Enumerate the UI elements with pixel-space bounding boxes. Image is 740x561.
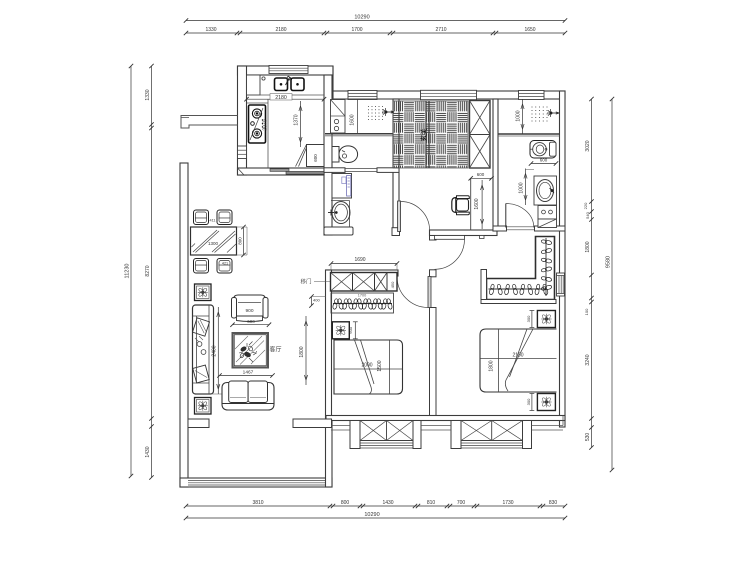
svg-text:2180: 2180 [275,95,287,101]
svg-text:玄关: 玄关 [419,128,428,142]
svg-text:1300: 1300 [208,241,219,246]
svg-text:421: 421 [222,262,228,266]
svg-text:600: 600 [313,154,318,162]
svg-text:600: 600 [247,319,255,324]
svg-text:10290: 10290 [354,15,369,21]
svg-text:11230: 11230 [125,264,131,279]
svg-text:400: 400 [313,298,320,303]
svg-text:450: 450 [390,281,395,288]
svg-text:530: 530 [585,433,591,442]
svg-text:2070: 2070 [263,119,269,130]
svg-text:600: 600 [540,158,548,163]
svg-text:2180: 2180 [275,27,286,33]
svg-text:800: 800 [341,500,350,506]
svg-text:1700: 1700 [351,27,362,33]
svg-text:300: 300 [526,398,531,405]
svg-text:1330: 1330 [145,89,151,100]
svg-text:100: 100 [584,308,589,315]
svg-text:1430: 1430 [382,500,393,506]
svg-text:300: 300 [526,315,531,322]
svg-text:800: 800 [238,237,243,245]
svg-text:1000: 1000 [516,110,522,121]
svg-text:1330: 1330 [205,27,216,33]
svg-text:客厅: 客厅 [269,346,281,354]
svg-text:1800: 1800 [489,360,495,371]
svg-text:700: 700 [457,500,466,506]
svg-text:1690: 1690 [354,257,365,263]
svg-text:1500: 1500 [377,360,383,371]
svg-text:3810: 3810 [252,500,263,506]
svg-text:1650: 1650 [524,27,535,33]
svg-text:10290: 10290 [364,512,379,518]
svg-text:1600: 1600 [474,198,480,209]
svg-text:540: 540 [585,211,590,218]
svg-text:2400: 2400 [212,345,218,356]
svg-text:1430: 1430 [145,446,151,457]
svg-text:9580: 9580 [606,256,612,268]
svg-text:1730: 1730 [502,500,513,506]
svg-text:1800: 1800 [585,241,591,252]
svg-text:600: 600 [477,172,485,177]
svg-text:2710: 2710 [435,27,446,33]
svg-text:3240: 3240 [585,354,591,365]
svg-text:600: 600 [348,326,353,333]
svg-text:1800: 1800 [299,346,305,357]
svg-text:8270: 8270 [145,265,151,276]
svg-text:1467: 1467 [243,369,254,375]
svg-text:810: 810 [427,500,436,506]
svg-text:411: 411 [209,219,215,223]
svg-text:900: 900 [245,308,253,314]
svg-text:1000: 1000 [519,182,525,193]
svg-text:220: 220 [583,202,588,209]
svg-text:移门: 移门 [300,278,311,286]
svg-text:1600: 1600 [350,114,356,125]
svg-text:1700: 1700 [358,294,366,298]
svg-text:830: 830 [549,500,558,506]
svg-text:3020: 3020 [585,140,591,151]
svg-text:1370: 1370 [294,114,300,125]
